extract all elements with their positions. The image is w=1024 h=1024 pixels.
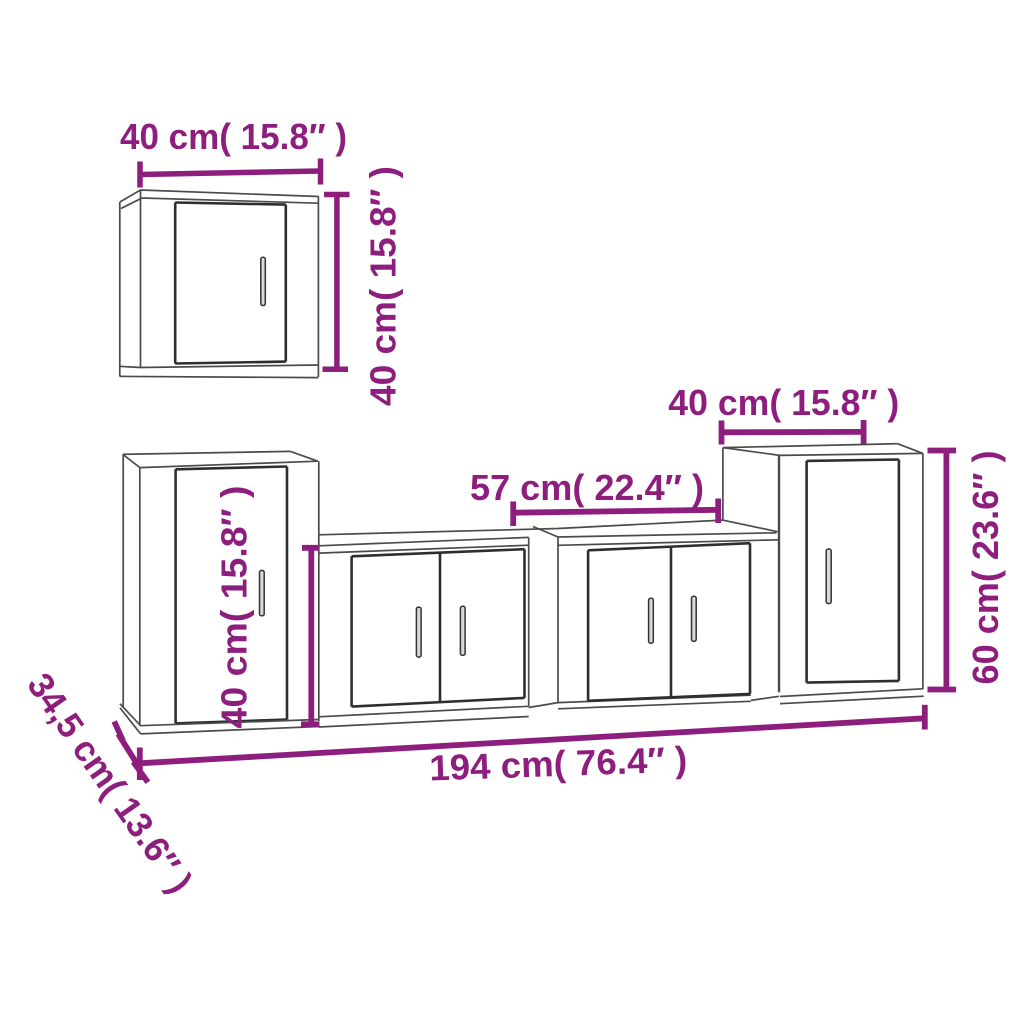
svg-text:40 cm( 15.8″ ): 40 cm( 15.8″ ) [214,486,255,729]
svg-text:60 cm( 23.6″ ): 60 cm( 23.6″ ) [965,451,1006,685]
svg-text:40 cm( 15.8″ ): 40 cm( 15.8″ ) [668,382,899,423]
svg-text:57 cm( 22.4″ ): 57 cm( 22.4″ ) [470,467,704,508]
svg-text:40 cm( 15.8″ ): 40 cm( 15.8″ ) [120,116,347,157]
svg-text:40 cm( 15.8″ ): 40 cm( 15.8″ ) [363,166,404,406]
